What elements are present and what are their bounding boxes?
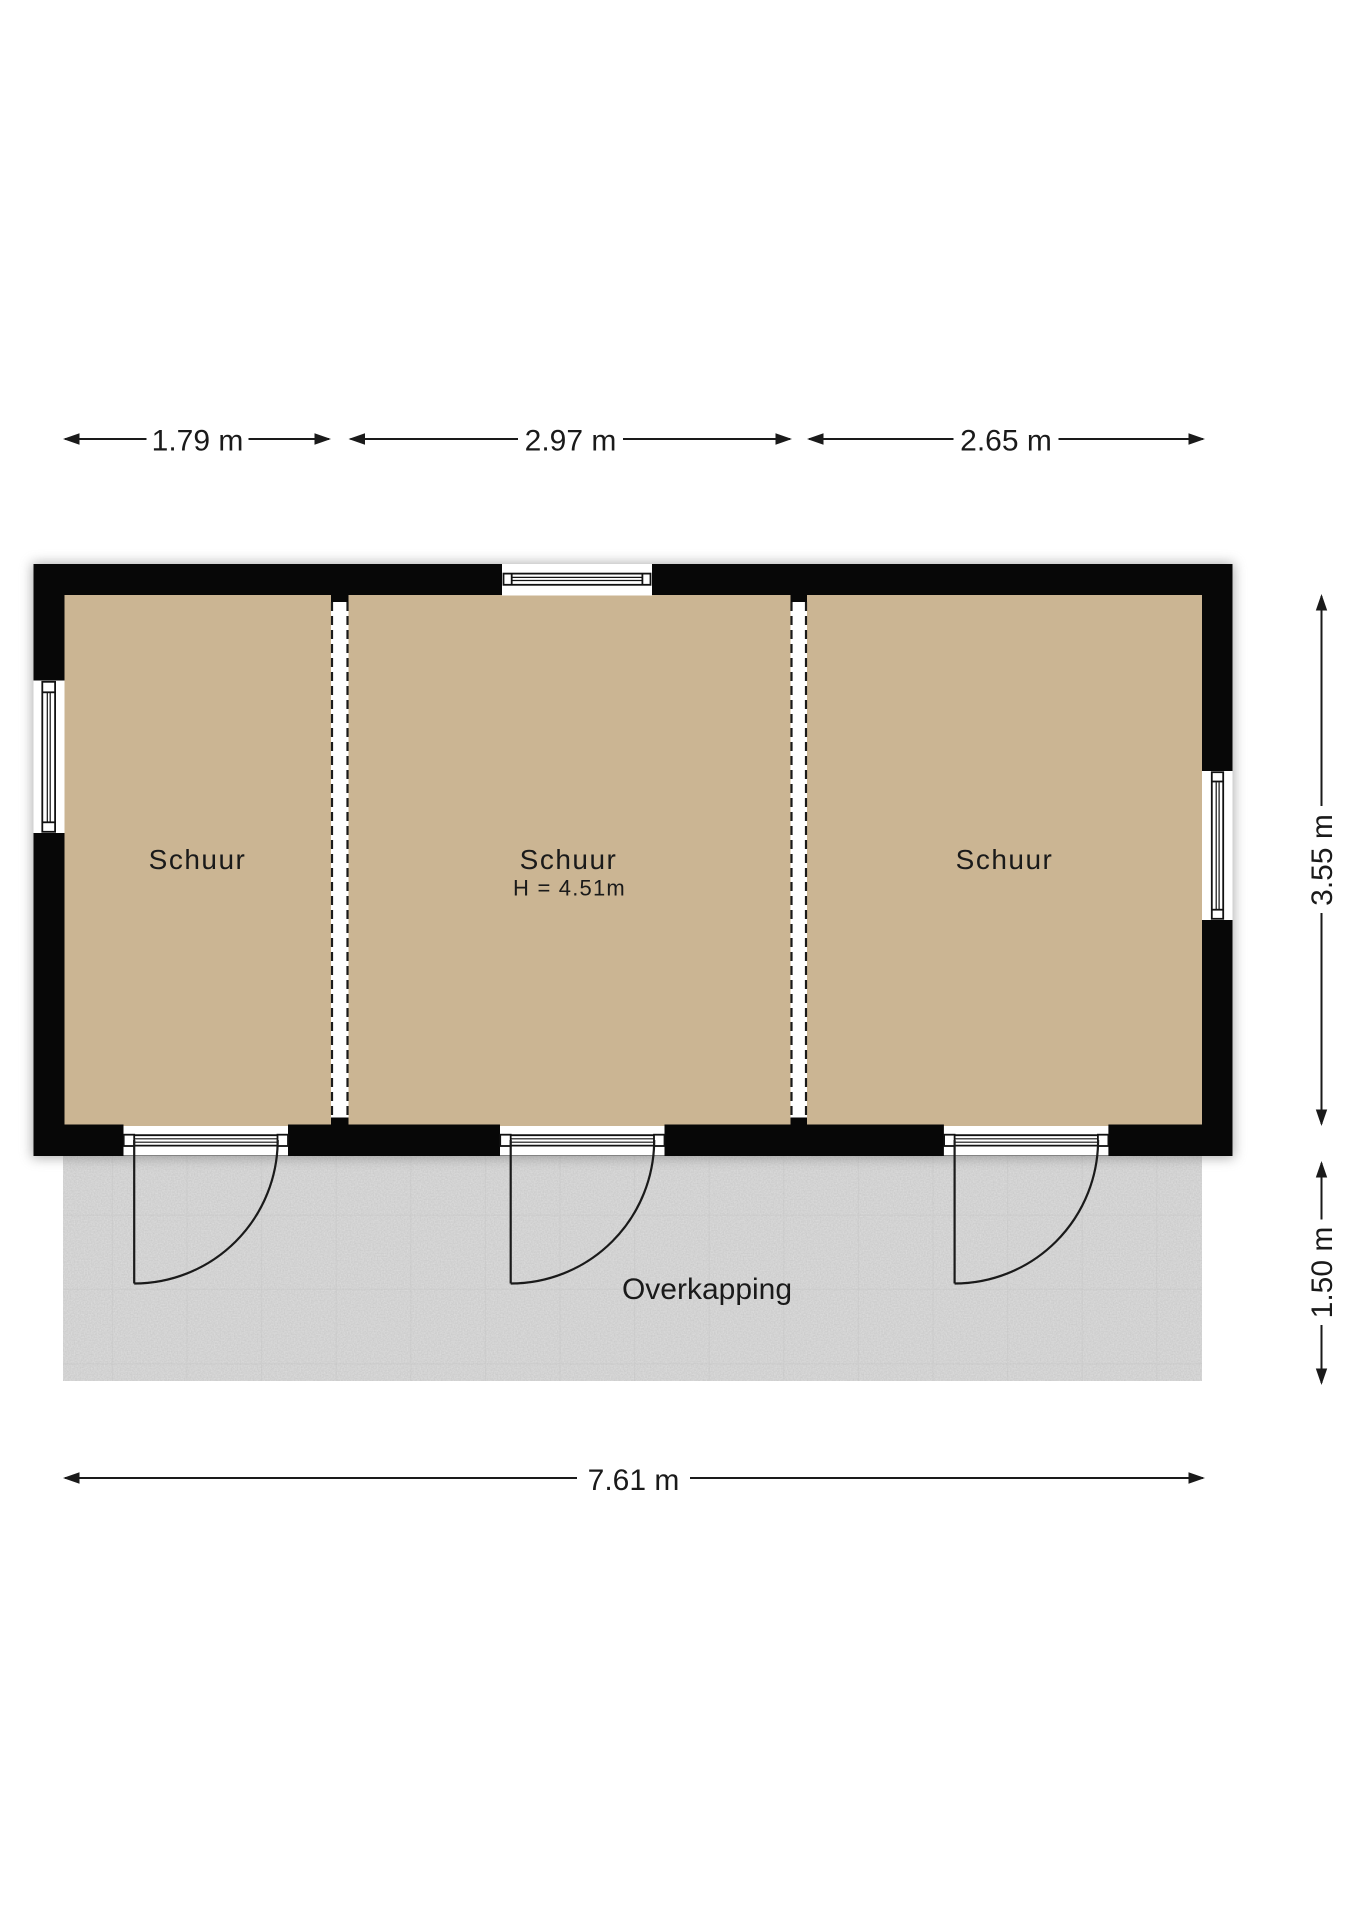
svg-text:1.79 m: 1.79 m [152,425,244,458]
svg-text:H = 4.51m: H = 4.51m [513,876,626,901]
svg-text:Schuur: Schuur [520,844,618,875]
svg-text:Overkapping: Overkapping [622,1273,792,1306]
svg-text:2.97 m: 2.97 m [525,425,617,458]
svg-text:7.61 m: 7.61 m [588,1464,680,1497]
svg-text:Schuur: Schuur [149,844,247,875]
svg-text:Schuur: Schuur [956,844,1054,875]
svg-text:1.50 m: 1.50 m [1306,1227,1339,1319]
svg-text:3.55 m: 3.55 m [1306,814,1339,906]
svg-text:2.65 m: 2.65 m [960,425,1052,458]
